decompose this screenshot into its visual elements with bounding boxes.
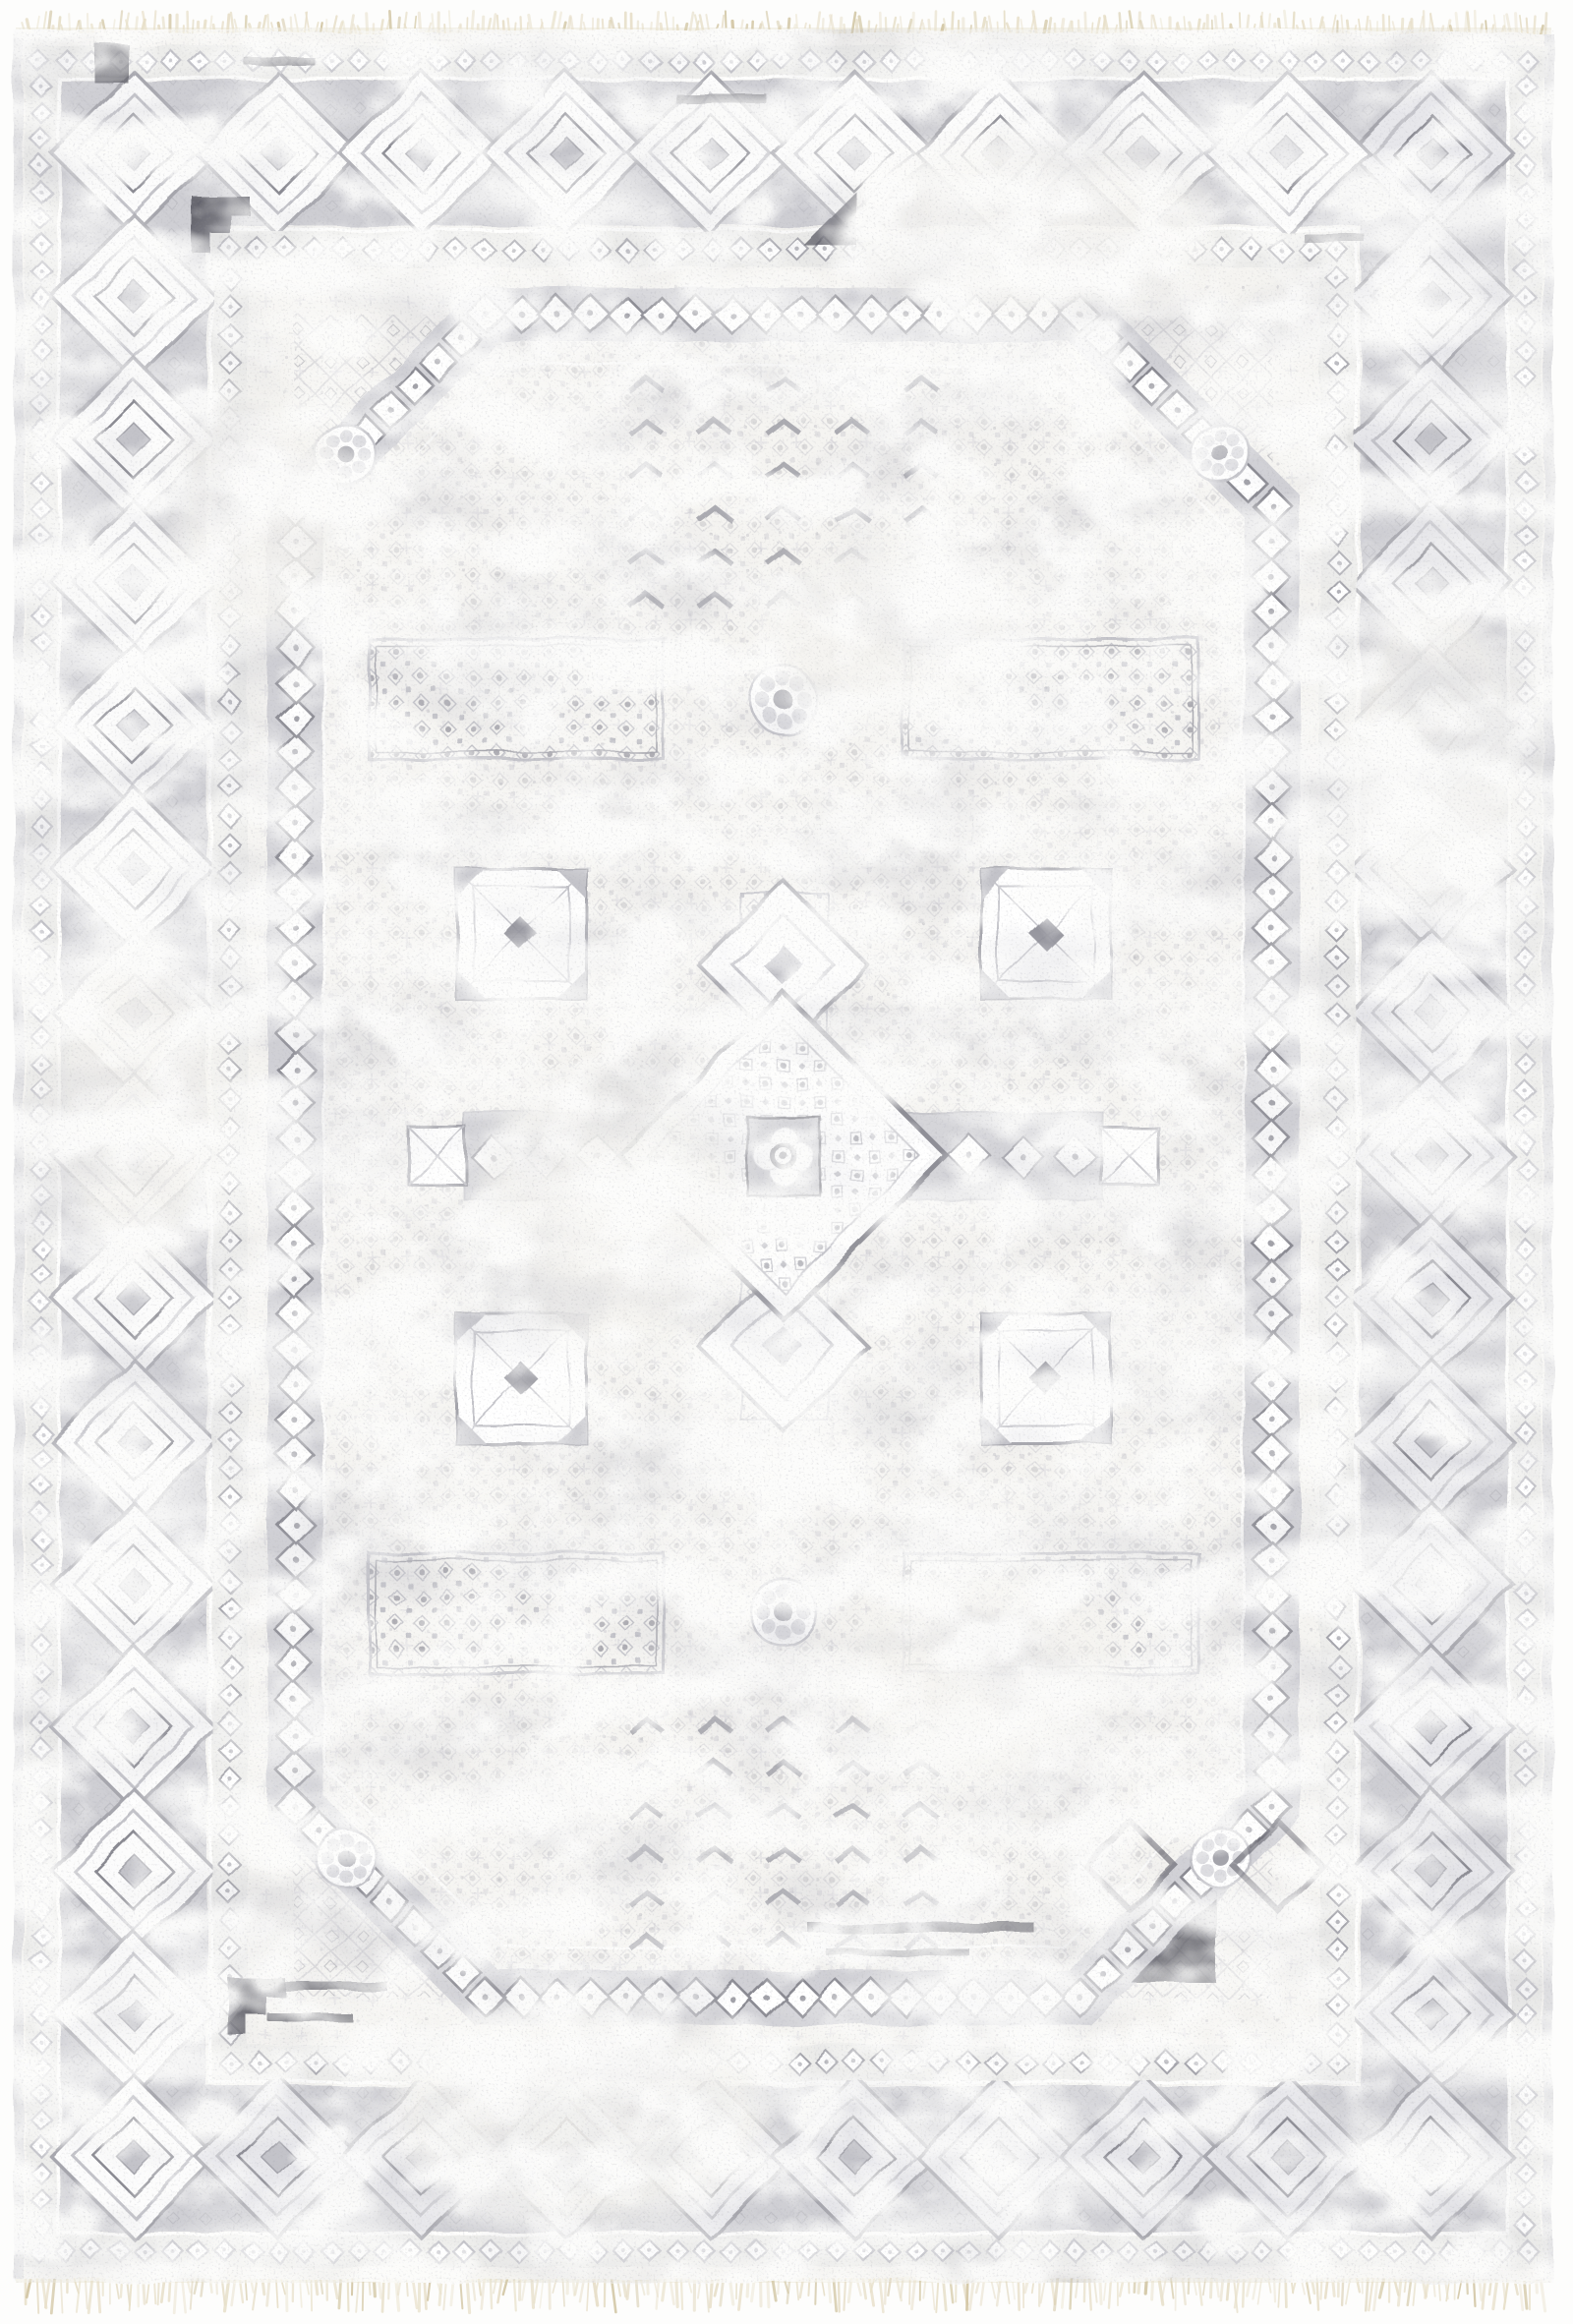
- fringe-strand: [839, 2279, 840, 2312]
- fringe-strand: [312, 2279, 313, 2311]
- fringe-strand: [286, 2279, 287, 2311]
- wear-grain: [14, 29, 1553, 2283]
- wear-overlay: [14, 29, 1553, 2283]
- fringe-strand: [1019, 2279, 1020, 2310]
- fringe-strand: [1317, 2279, 1319, 2310]
- fringe-strand: [550, 2279, 551, 2308]
- fringe-strand: [532, 2279, 534, 2307]
- fringe-strand: [1474, 2279, 1476, 2306]
- fringe-strand: [681, 2279, 682, 2309]
- fringe-strand: [382, 2279, 383, 2311]
- fringe-strand: [339, 2279, 341, 2308]
- fringe-strand: [363, 2279, 364, 2310]
- rug-photo: Product photograph of a distressed vinta…: [0, 0, 1573, 2324]
- fringe-strand: [1071, 2279, 1072, 2309]
- fringe-strand: [425, 2279, 427, 2309]
- fringe-strand: [676, 2279, 677, 2307]
- fringe-strand: [967, 2279, 968, 2310]
- fringe-strand: [491, 2279, 492, 2308]
- fringe-strand: [1342, 2279, 1343, 2305]
- rug-body: [14, 29, 1553, 2283]
- fringe-strand: [1286, 2279, 1287, 2307]
- fringe-strand: [348, 2279, 349, 2311]
- fringe-strand: [768, 2279, 769, 2307]
- rug-image: [0, 0, 1573, 2324]
- fringe-strand: [1243, 2279, 1244, 2306]
- fringe-strand: [710, 2279, 712, 2307]
- product-photo-canvas: Product photograph of a distressed vinta…: [0, 0, 1573, 2324]
